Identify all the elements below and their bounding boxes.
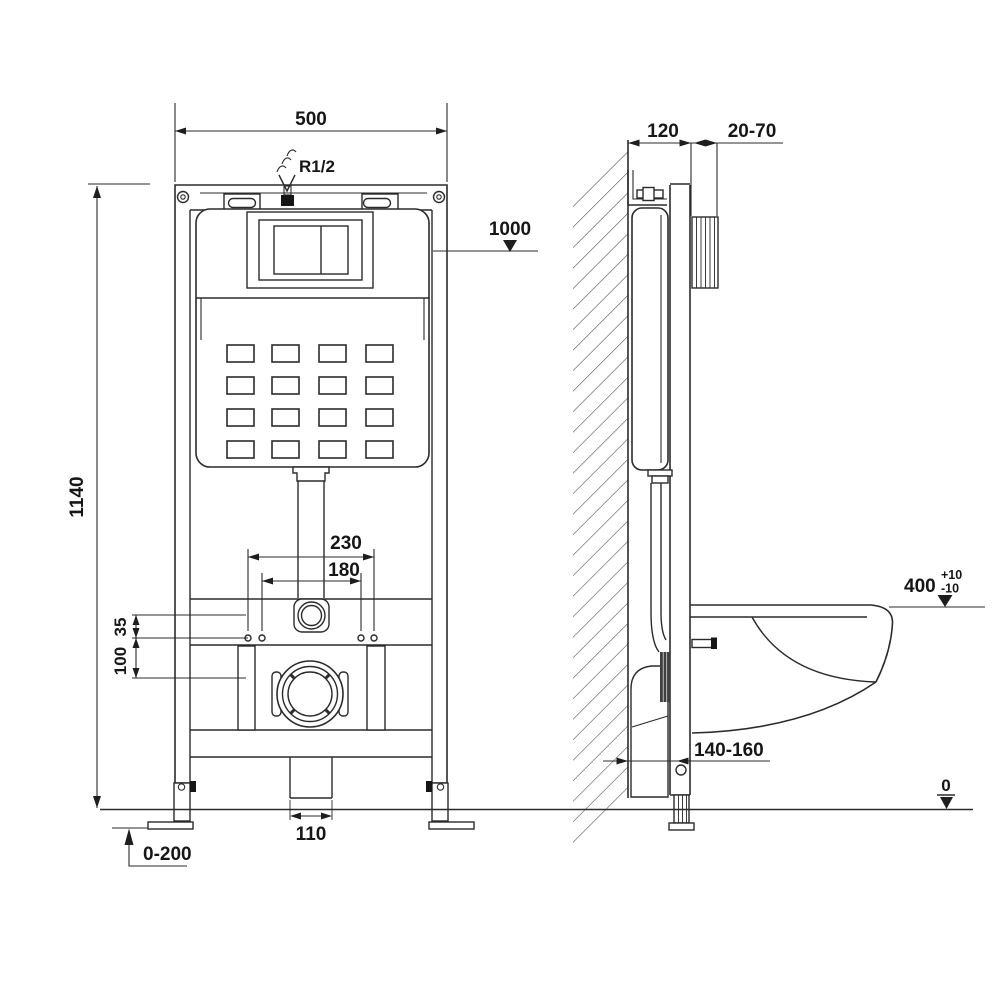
flush-pipe-front [293, 467, 329, 598]
technical-drawing: R1/2 [0, 0, 1000, 1000]
dim-rim-tol-minus-label: -10 [941, 582, 959, 596]
dim-rim-height-label: 400 [904, 576, 936, 597]
fixing-bolt-holes [245, 635, 377, 641]
dim-inlet-label: R1/2 [299, 157, 335, 176]
dim-floor-level: 0 [937, 776, 955, 809]
dim-foot-adjustment: 0-200 [112, 828, 192, 866]
flush-plate-window [247, 212, 373, 288]
dim-left-offsets: 35 100 [111, 615, 248, 678]
dim-frame-height-label: 1140 [67, 476, 88, 517]
wall-hatching [573, 140, 628, 853]
dim-frame-height: 1140 [67, 184, 150, 808]
dim-floor-label: 0 [941, 776, 950, 795]
dim-bolt-inner-label: 180 [328, 560, 360, 581]
dim-depth-group: 120 20-70 [628, 121, 783, 216]
dim-offset-b-label: 100 [111, 647, 130, 675]
flush-elbow-outlet [294, 599, 329, 632]
dim-flush-level-label: 1000 [489, 219, 531, 240]
dim-depth-label: 120 [647, 121, 679, 142]
dim-rim-height: 400 +10 -10 [889, 568, 985, 607]
adjustable-feet [148, 781, 474, 829]
cistern-side [632, 208, 668, 470]
dim-flush-level: 1000 [433, 219, 538, 252]
frame-post-side [670, 184, 690, 795]
technical-drawing-page: R1/2 [0, 0, 1000, 1000]
water-inlet-fitting: R1/2 [277, 150, 335, 206]
side-view: 120 20-70 400 +10 -10 140-160 0 [573, 121, 985, 853]
front-view: R1/2 [67, 103, 538, 866]
dim-offset-a-label: 35 [111, 618, 130, 637]
dim-drain-width: 110 [290, 813, 332, 846]
wall-finish-block [692, 217, 718, 288]
dim-front-range-label: 20-70 [728, 121, 777, 142]
toilet-bowl-profile [690, 605, 893, 733]
dim-foot-range-label: 0-200 [143, 844, 192, 865]
drain-outlet [272, 661, 348, 727]
dim-rim-tol-plus-label: +10 [941, 568, 962, 582]
dim-drain-width-label: 110 [296, 824, 327, 845]
dim-bolt-outer-label: 230 [330, 533, 362, 554]
dim-frame-width-label: 500 [295, 109, 327, 130]
dim-outlet-range-label: 140-160 [694, 740, 764, 761]
wall-bracket [628, 170, 667, 205]
drain-pipe-front [290, 757, 332, 820]
